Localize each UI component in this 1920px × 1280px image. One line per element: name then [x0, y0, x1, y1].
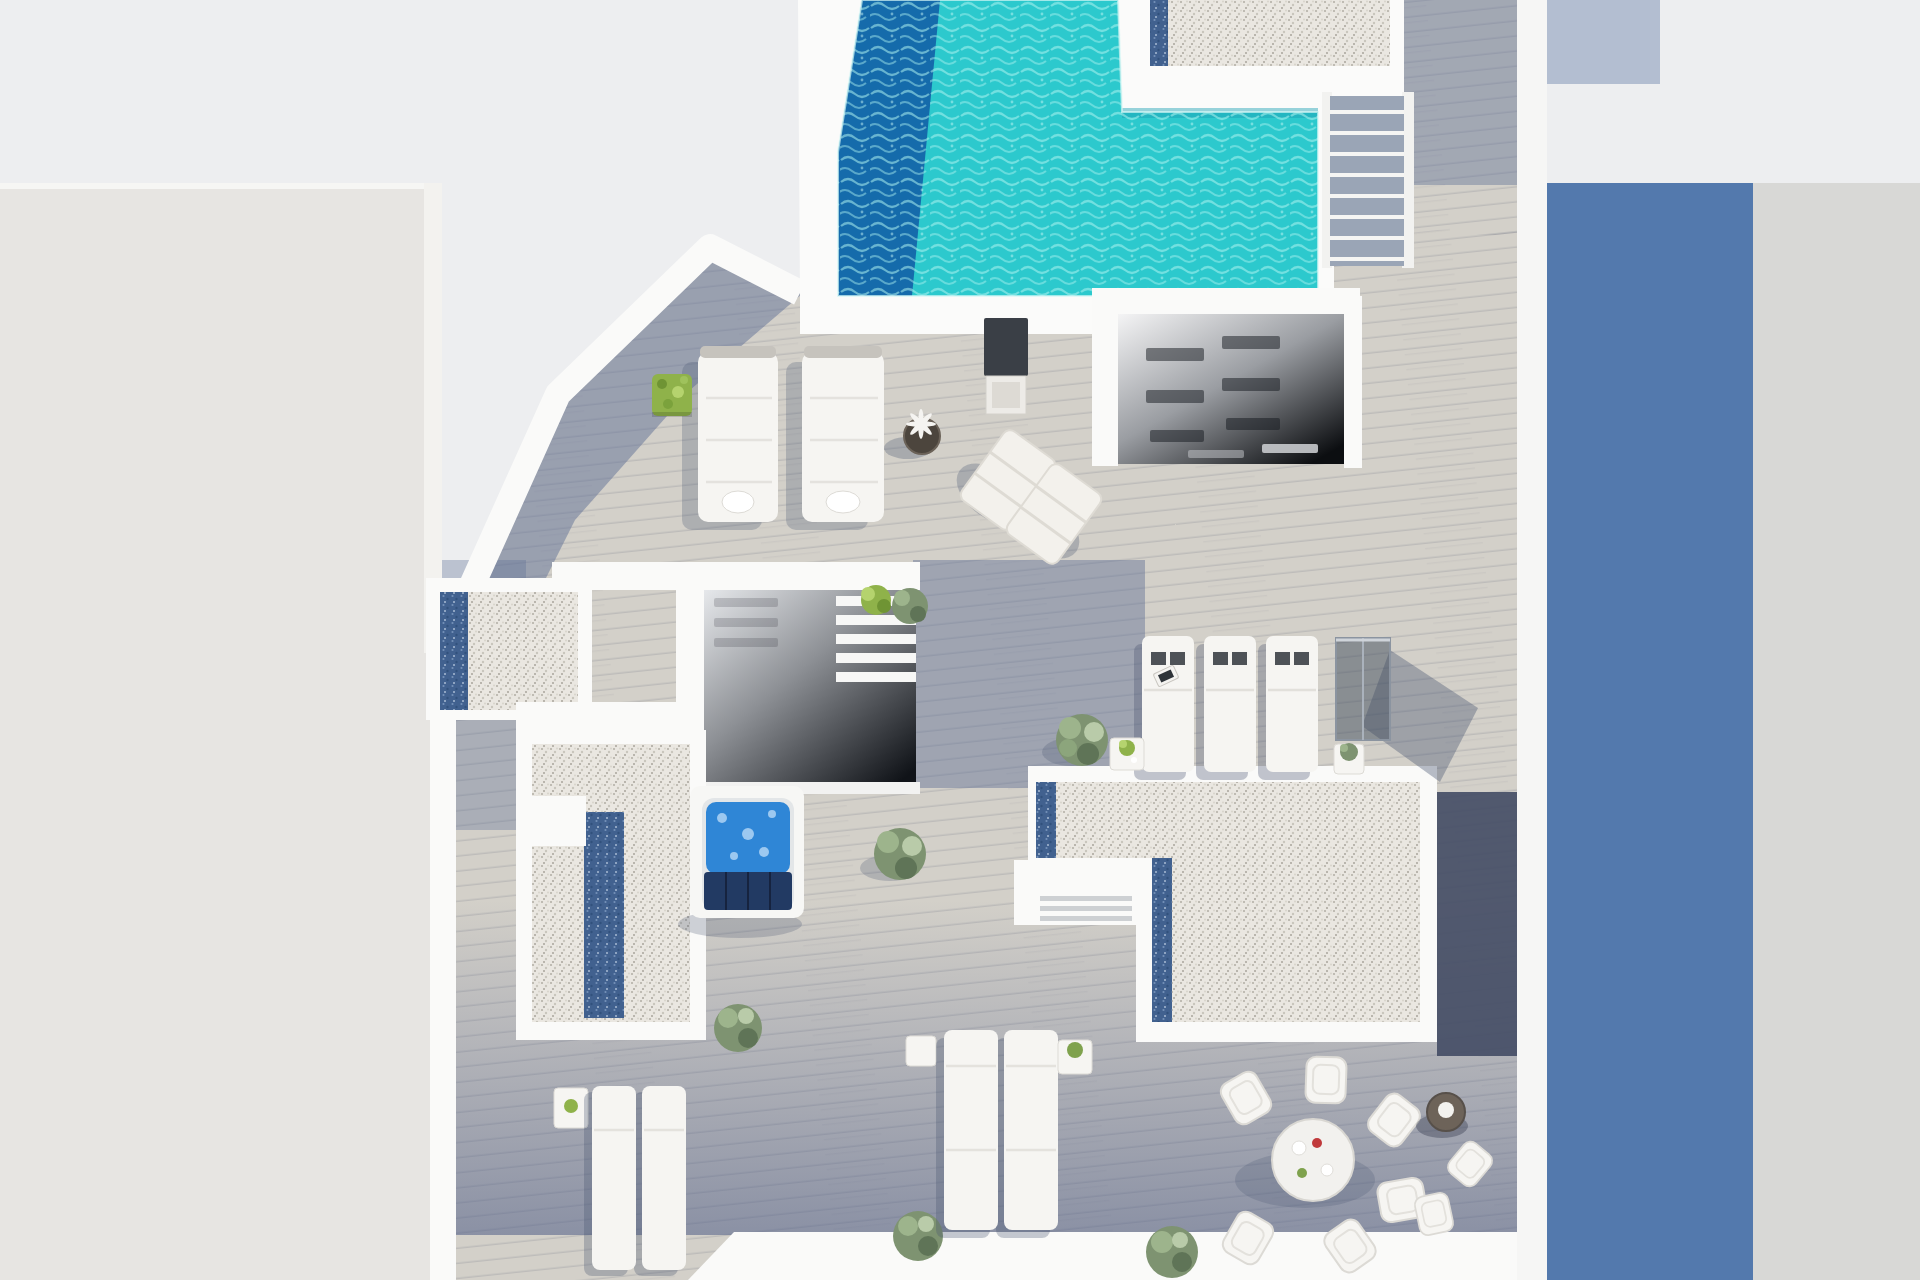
deck-dark-corner — [1437, 792, 1517, 1056]
render-canvas — [0, 0, 1920, 1280]
stairwell-upper-light-slat — [1262, 444, 1318, 453]
gravel-center-blue-stem — [1152, 858, 1172, 1022]
sun-lounger — [592, 1086, 636, 1270]
plant-cube-bright — [652, 374, 692, 417]
lounger-trio — [1134, 636, 1318, 780]
plate — [1321, 1164, 1333, 1176]
neighbor-building-left — [0, 183, 504, 1280]
stairwell-middle-shadow-slats — [714, 598, 778, 647]
gravel-left-lower-blue — [584, 812, 624, 1018]
red-bowl — [1312, 1138, 1322, 1148]
plant-by-screen — [1334, 743, 1364, 774]
gravel-band — [1168, 0, 1390, 66]
neighbor-roof-right — [1753, 183, 1920, 1280]
dining-chair — [1305, 1056, 1347, 1103]
agave-leaves — [906, 409, 936, 439]
gravel-center-crossbar — [1056, 782, 1420, 858]
side-table — [906, 1036, 936, 1066]
cast-shadow-blue — [1547, 183, 1753, 1280]
plant-bottom-3 — [1146, 1226, 1198, 1278]
terrace-plan-svg — [0, 0, 1920, 1280]
right-wall-top-shade — [1547, 0, 1660, 84]
coping-notch-edge — [1390, 0, 1404, 66]
gravel-left-upper-blue — [440, 592, 468, 710]
sun-lounger — [1204, 636, 1256, 772]
sun-lounger — [642, 1086, 686, 1270]
table-plant — [564, 1099, 578, 1113]
stairwell-middle-wall-top — [552, 562, 920, 590]
gravel-center-fin-shadows — [1040, 896, 1132, 921]
jacuzzi — [678, 786, 804, 938]
pool-dark-mat — [984, 318, 1028, 376]
sun-lounger — [944, 1030, 998, 1230]
stairwell-upper-light-slat2 — [1188, 450, 1244, 458]
sun-lounger — [1004, 1030, 1058, 1230]
stairwell-upper-wall-left — [1092, 314, 1118, 466]
plant-bottom-1 — [714, 1004, 762, 1052]
towel — [826, 491, 860, 513]
pool-stairs — [1322, 92, 1414, 268]
bistro-table-item — [1438, 1102, 1454, 1118]
dining-table — [1272, 1119, 1354, 1201]
gravel-band-blue-strip — [1150, 0, 1168, 66]
wall-left — [430, 640, 456, 1280]
towel — [722, 491, 754, 513]
stairwell-upper — [1092, 288, 1362, 468]
stairwell-upper-wall-top — [1092, 288, 1360, 314]
bistro-chair — [1413, 1191, 1454, 1236]
side-table-center — [1110, 738, 1144, 770]
roof-gravel-band — [1150, 0, 1390, 66]
neighbor-building-roof — [0, 183, 442, 1280]
table-plant — [1067, 1042, 1083, 1058]
plant-bottom-2 — [893, 1211, 943, 1261]
lounger-headbar — [804, 346, 882, 358]
lounger-headbar — [700, 346, 776, 358]
sun-lounger — [1266, 636, 1318, 772]
plate — [1292, 1141, 1306, 1155]
stairwell-upper-wall-right — [1344, 296, 1362, 468]
sun-lounger — [1142, 636, 1194, 772]
stair-run — [1330, 96, 1404, 266]
gravel-center-blue-top — [1036, 782, 1056, 858]
gravel-left-upper-fill — [468, 592, 578, 710]
gravel-center-stem — [1172, 858, 1420, 1022]
pool-mat — [984, 318, 1028, 414]
pool-mat-tray-inner — [992, 382, 1020, 408]
wall-right — [1517, 0, 1547, 1280]
gravel-left-white-notch — [532, 796, 586, 846]
wall-bottom — [688, 1232, 1520, 1280]
green-bowl — [1297, 1168, 1307, 1178]
shadow-top-right-strip — [1404, 0, 1517, 185]
roof-edge-highlight — [0, 183, 442, 189]
gravel-left-connector — [516, 702, 702, 734]
